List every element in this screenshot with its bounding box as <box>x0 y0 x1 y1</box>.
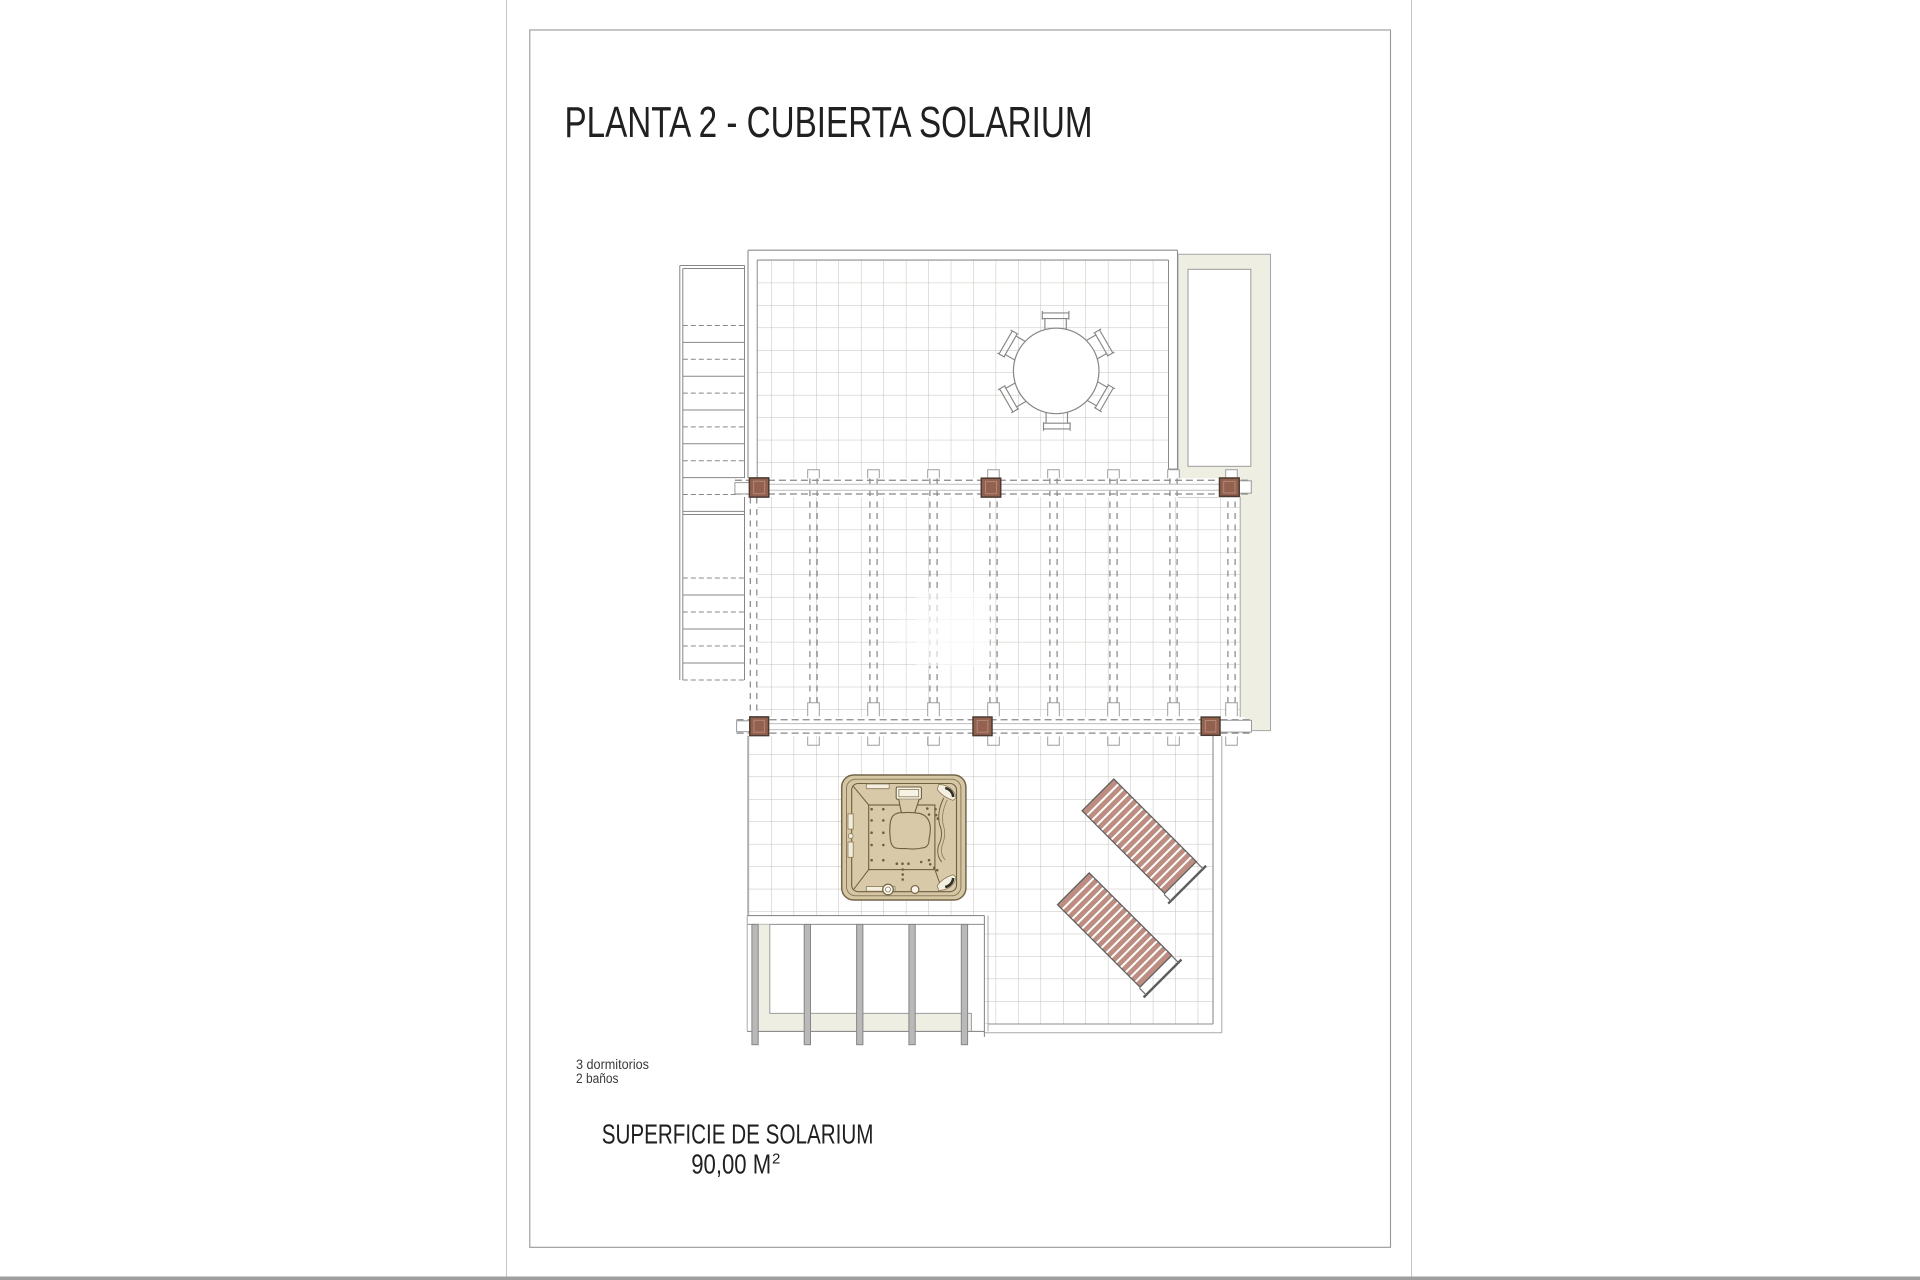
svg-text:90,00 M: 90,00 M <box>691 1149 771 1180</box>
svg-text:PLANTA 2 - CUBIERTA SOLARIUM: PLANTA 2 - CUBIERTA SOLARIUM <box>565 99 1093 147</box>
svg-text:SUPERFICIE DE SOLARIUM: SUPERFICIE DE SOLARIUM <box>602 1119 874 1150</box>
svg-text:2 baños: 2 baños <box>576 1071 619 1087</box>
svg-text:2: 2 <box>772 1151 780 1168</box>
